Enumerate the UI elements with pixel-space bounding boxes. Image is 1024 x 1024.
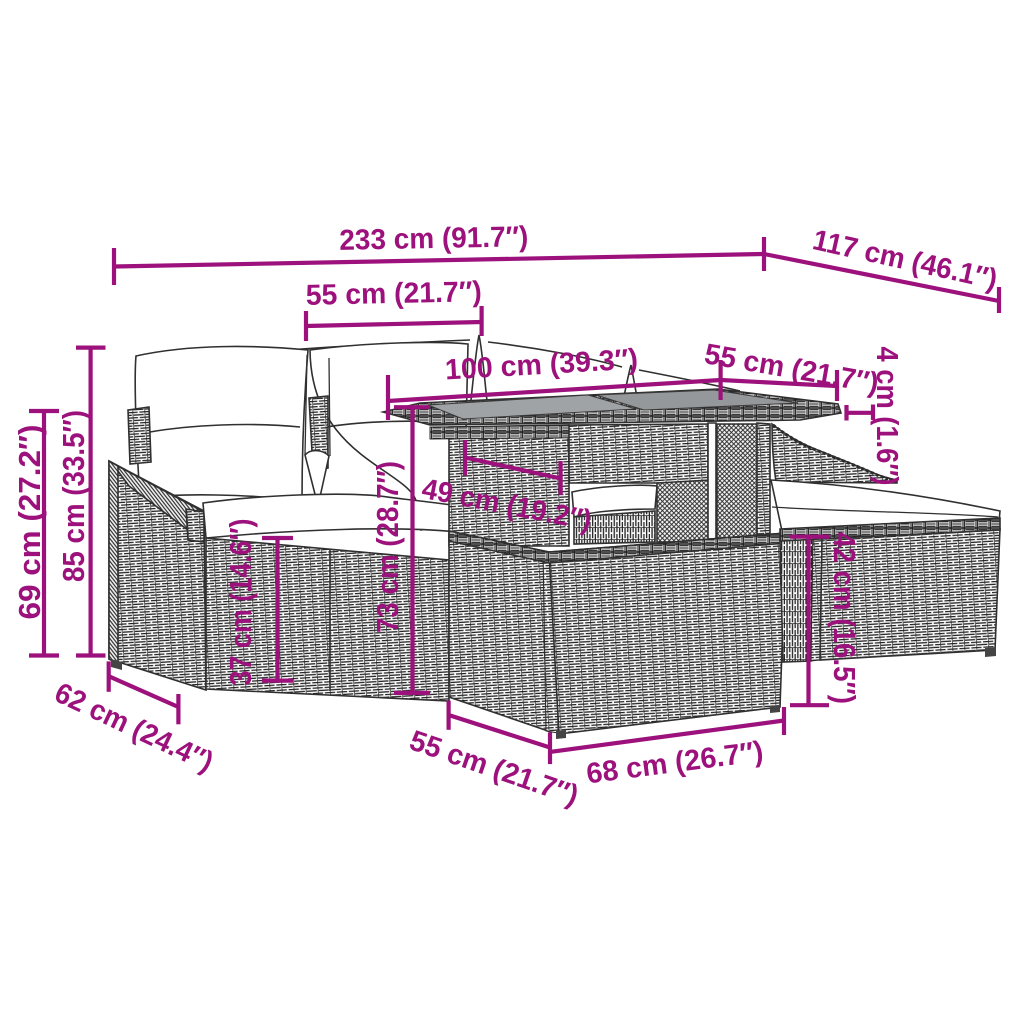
svg-text:42 cm (16.5″): 42 cm (16.5″) bbox=[827, 532, 862, 704]
svg-text:4 cm (1.6″): 4 cm (1.6″) bbox=[870, 347, 905, 486]
svg-text:55 cm (21.7″): 55 cm (21.7″) bbox=[305, 276, 482, 312]
svg-text:69 cm (27.2″): 69 cm (27.2″) bbox=[12, 425, 47, 620]
svg-text:85 cm (33.5″): 85 cm (33.5″) bbox=[56, 410, 91, 582]
svg-text:73 cm (28.7″): 73 cm (28.7″) bbox=[370, 461, 405, 633]
svg-text:37 cm (14.6″): 37 cm (14.6″) bbox=[223, 519, 258, 686]
svg-text:233 cm (91.7″): 233 cm (91.7″) bbox=[339, 221, 529, 257]
